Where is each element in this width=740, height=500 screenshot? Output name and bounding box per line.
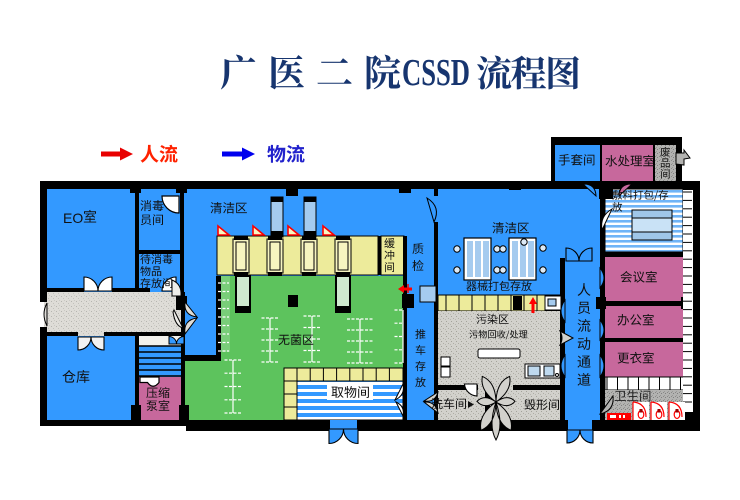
svg-text:CSSD: CSSD — [402, 52, 470, 94]
svg-text:EO: EO — [63, 210, 83, 226]
